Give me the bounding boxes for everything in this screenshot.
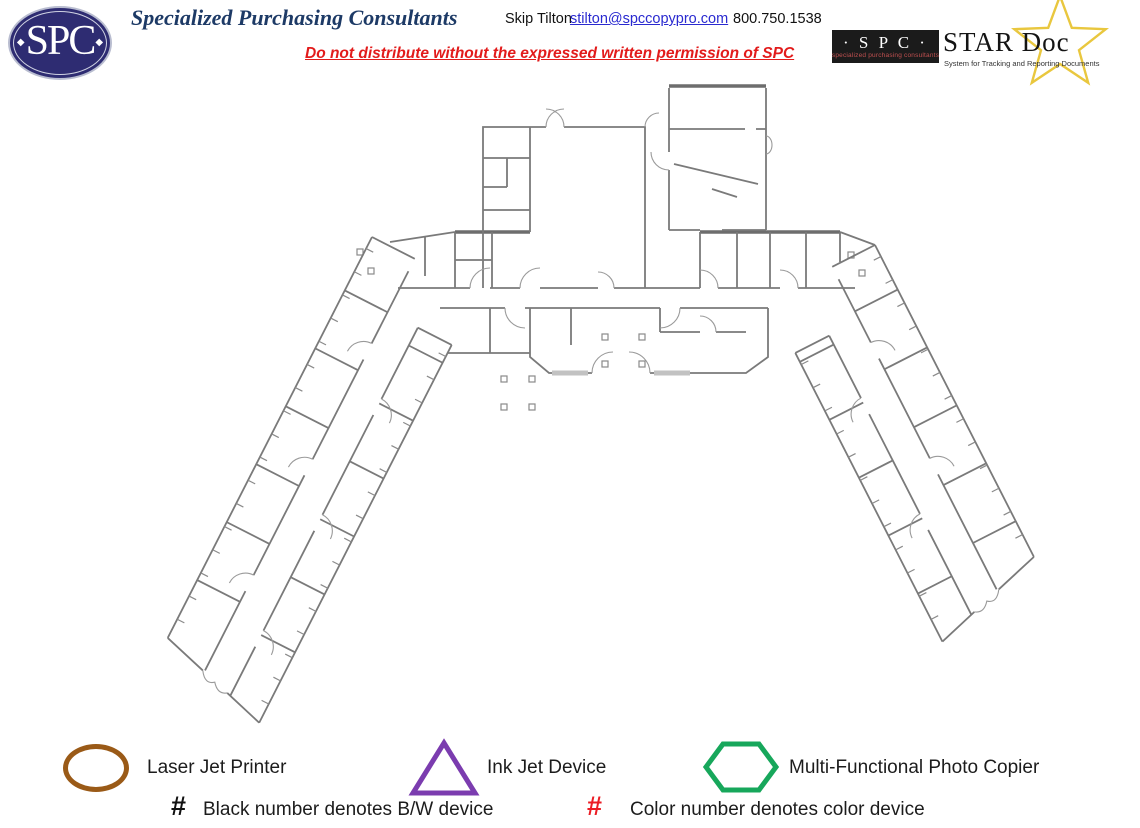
color-note-label: Color number denotes color device (630, 799, 925, 821)
mfp-label: Multi-Functional Photo Copier (789, 757, 1039, 779)
laserjet-label: Laser Jet Printer (147, 757, 286, 779)
bw-hash-mark: # (171, 791, 186, 822)
mfp-symbol (702, 740, 780, 794)
right-wing-corridor (808, 279, 1001, 614)
left-wing (152, 237, 479, 723)
left-wing-partitions (188, 290, 452, 652)
bw-note-label: Black number denotes B/W device (203, 799, 493, 821)
hexagon-shape (706, 744, 776, 790)
document-page: ◆ SPC ◆ Specialized Purchasing Consultan… (0, 0, 1140, 828)
right-wing-windows (774, 257, 1038, 620)
door-swings (470, 109, 798, 373)
columns (357, 249, 865, 410)
right-wing-partitions (791, 290, 1025, 594)
floor-plan (0, 0, 1140, 828)
left-wing-corridor (200, 271, 439, 695)
inkjet-label: Ink Jet Device (487, 757, 606, 779)
right-wing-outline (768, 245, 1049, 642)
left-wing-outline (152, 237, 479, 723)
color-hash-mark: # (587, 791, 602, 822)
laserjet-symbol (63, 744, 129, 792)
right-wing (768, 245, 1049, 642)
right-wing-doors (824, 334, 1018, 624)
inkjet-symbol (408, 738, 480, 798)
center-block (357, 86, 875, 410)
left-wing-windows (162, 249, 473, 704)
triangle-shape (413, 743, 475, 793)
